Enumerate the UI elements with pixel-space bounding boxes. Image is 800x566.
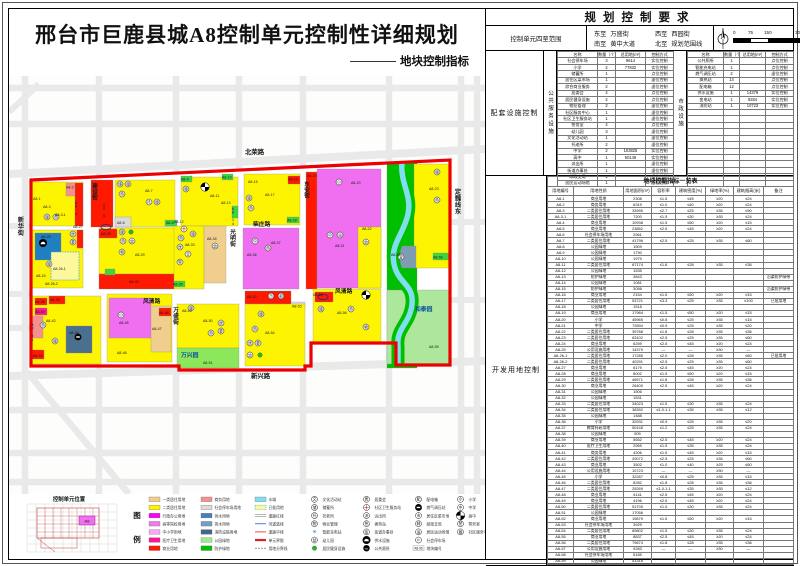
legend-column: 小小学中中学高中警警务室服社区服务中心 bbox=[456, 496, 485, 535]
road-label: 万盛街 bbox=[172, 307, 179, 326]
parcel-label: A8-38 bbox=[35, 300, 45, 304]
svg-text:已批用地: 已批用地 bbox=[269, 505, 284, 510]
svg-text:医疗卫生用地: 医疗卫生用地 bbox=[163, 538, 186, 543]
parcel-label: A8-24 bbox=[36, 274, 46, 278]
scale-bar-segments bbox=[733, 38, 800, 43]
parcel-label: A8-15 bbox=[248, 180, 258, 184]
parcel-label: A8-1 bbox=[33, 197, 41, 201]
legend-column: 文文化活动站储储蓄所托托老所物物业管理✳智能充电站幼幼儿园居民健身设施 bbox=[312, 496, 346, 551]
right-panel: 规划控制要求 控制单元四至范围 东至万盛街西至西园街南至黄中大道北至规划范围线 … bbox=[485, 9, 794, 559]
svg-text:A8-56: A8-56 bbox=[414, 547, 423, 551]
svg-text:储: 储 bbox=[118, 181, 122, 186]
svg-text:道路中线: 道路中线 bbox=[269, 530, 284, 535]
svg-text:市: 市 bbox=[269, 293, 273, 298]
svg-text:中: 中 bbox=[328, 232, 332, 237]
svg-text:建设街: 建设街 bbox=[91, 182, 98, 202]
svg-text:文: 文 bbox=[313, 497, 317, 502]
legend-column: 商务用地社会停车场用地供水用地排水用地消防设施用地公园绿地防护绿地 bbox=[201, 497, 241, 551]
svg-text:A8-16: A8-16 bbox=[288, 178, 298, 182]
sheet-frame: 邢台市巨鹿县城A8控制单元控制性详细规划 地块控制指标 服热储服热托服服服热小中… bbox=[8, 8, 794, 560]
svg-text:幼: 幼 bbox=[213, 243, 217, 248]
svg-text:A8-15: A8-15 bbox=[248, 180, 258, 184]
svg-text:道路红线: 道路红线 bbox=[269, 513, 284, 518]
svg-text:A8-12: A8-12 bbox=[174, 220, 184, 224]
svg-text:商务用地: 商务用地 bbox=[215, 497, 230, 502]
svg-text:服: 服 bbox=[47, 261, 51, 266]
svg-text:配: 配 bbox=[417, 497, 421, 502]
svg-text:服: 服 bbox=[435, 169, 439, 174]
svg-text:居民运动场馆: 居民运动场馆 bbox=[427, 530, 450, 535]
svg-text:A8-54: A8-54 bbox=[265, 331, 275, 335]
svg-text:万盛街: 万盛街 bbox=[172, 307, 179, 326]
svg-text:文化活动站: 文化活动站 bbox=[323, 497, 342, 502]
parcel-label: A8-53 bbox=[292, 305, 302, 309]
svg-text:控制单元位置: 控制单元位置 bbox=[53, 495, 86, 503]
scale-seg bbox=[734, 39, 751, 42]
svg-text:托老所: 托老所 bbox=[323, 513, 335, 518]
svg-text:A8-11: A8-11 bbox=[210, 194, 219, 198]
svg-text:物: 物 bbox=[120, 249, 124, 254]
svg-text:幼: 幼 bbox=[248, 352, 252, 357]
svg-text:A8-2: A8-2 bbox=[66, 186, 74, 190]
parcel-label: A8-19 bbox=[307, 174, 317, 178]
svg-text:A8-10: A8-10 bbox=[222, 176, 232, 180]
svg-text:智能充电站: 智能充电站 bbox=[323, 530, 342, 535]
svg-text:地块编号: 地块编号 bbox=[427, 546, 442, 551]
svg-text:小: 小 bbox=[337, 179, 341, 184]
road-label: 新华街 bbox=[17, 216, 25, 237]
svg-text:居: 居 bbox=[219, 320, 223, 325]
svg-text:A8-29: A8-29 bbox=[135, 253, 145, 257]
svg-text:A8-20: A8-20 bbox=[351, 181, 361, 185]
svg-text:热: 热 bbox=[249, 205, 253, 210]
road-label: 万兴园 bbox=[180, 351, 199, 359]
svg-text:幼: 幼 bbox=[313, 537, 317, 542]
svg-text:社区服务中心: 社区服务中心 bbox=[469, 530, 486, 535]
svg-text:热: 热 bbox=[266, 245, 270, 250]
parcel-label: A8-13 bbox=[221, 201, 231, 205]
svg-text:A8-1: A8-1 bbox=[33, 197, 41, 201]
planning-sheet: 邢台市巨鹿县城A8控制单元控制性详细规划 地块控制指标 服热储服热托服服服热小中… bbox=[0, 0, 800, 566]
table-header-row: 用地编号用地性质用地面积(m²)容积率建筑密度(%)绿地率(%)建筑限高(米)备… bbox=[547, 187, 793, 196]
svg-text:A8-38: A8-38 bbox=[35, 300, 45, 304]
bounds-direction: 东至万盛街 bbox=[589, 29, 650, 38]
svg-text:A8-18: A8-18 bbox=[287, 219, 297, 223]
parcel-label: A8-26-2 bbox=[45, 282, 58, 286]
parcel-label: A8-23 bbox=[429, 187, 439, 191]
parcel-label: A8-50 bbox=[203, 319, 213, 323]
parcel-label: A8-9 bbox=[181, 178, 189, 182]
scale-tick: 300m bbox=[795, 30, 800, 35]
svg-text:A8-17: A8-17 bbox=[265, 193, 275, 197]
legend-column: 配配电箱燃气调压站市居住区菜市场邮邮政支局运居民运动场馆P社会停车场A8-56地… bbox=[413, 496, 449, 551]
svg-text:居民健身设施: 居民健身设施 bbox=[323, 546, 346, 551]
svg-text:市: 市 bbox=[417, 513, 421, 518]
svg-text:图: 图 bbox=[133, 511, 141, 520]
parcel-label: A8-37 bbox=[271, 241, 281, 245]
bounds-label: 控制单元四至范围 bbox=[486, 26, 587, 50]
parcel-label: A8-46 bbox=[117, 351, 127, 355]
page-title: 邢台市巨鹿县城A8控制单元控制性详细规划 bbox=[9, 9, 485, 49]
svg-text:中: 中 bbox=[253, 238, 257, 243]
svg-text:幼: 幼 bbox=[364, 239, 368, 244]
bounds-direction: 北至规划范围线 bbox=[650, 39, 711, 48]
parcel-label: A8-8 bbox=[166, 221, 174, 225]
svg-text:水域: 水域 bbox=[269, 497, 277, 502]
parcel-label: A8-34 bbox=[207, 237, 217, 241]
parcel-label: A8-33 bbox=[185, 243, 195, 247]
svg-text:A8: A8 bbox=[85, 519, 91, 524]
svg-text:储: 储 bbox=[313, 505, 317, 510]
svg-text:A8-40: A8-40 bbox=[35, 310, 45, 314]
svg-text:邮: 邮 bbox=[279, 293, 283, 298]
parcel-label: A8-42 bbox=[46, 319, 56, 323]
svg-text:居: 居 bbox=[178, 244, 182, 249]
left-panel: 邢台市巨鹿县城A8控制单元控制性详细规划 地块控制指标 服热储服热托服服服热小中… bbox=[9, 9, 485, 559]
svg-text:A8-21: A8-21 bbox=[335, 244, 345, 248]
parcel-label: A8-54 bbox=[265, 331, 275, 335]
parcel-label: A8-43 bbox=[33, 354, 43, 358]
svg-text:A8-26-2: A8-26-2 bbox=[45, 282, 58, 286]
svg-text:行政办公用地: 行政办公用地 bbox=[163, 513, 186, 518]
svg-text:热: 热 bbox=[435, 197, 439, 202]
svg-text:警务室: 警务室 bbox=[469, 521, 481, 526]
parcel-label: A8-56 bbox=[337, 311, 347, 315]
parcel-label: A8-51 bbox=[203, 361, 213, 365]
svg-text:防护绿地: 防护绿地 bbox=[215, 546, 230, 551]
svg-text:A8-52: A8-52 bbox=[247, 295, 257, 299]
road-label: 新兴路 bbox=[251, 371, 271, 380]
road-label: 风清路 bbox=[143, 297, 161, 305]
svg-text:A8-3-1: A8-3-1 bbox=[55, 213, 66, 217]
svg-text:A8-42: A8-42 bbox=[46, 319, 56, 323]
zoning-map-svg: 服热储服热托服服服热小中运幼服热居委服服热幼物十服热居交警幼中热变热服小服居委热… bbox=[9, 76, 485, 494]
svg-text:A8-50: A8-50 bbox=[203, 319, 213, 323]
svg-text:A8-45: A8-45 bbox=[119, 321, 129, 325]
svg-text:A8-8: A8-8 bbox=[166, 221, 174, 225]
svg-text:A8-53: A8-53 bbox=[292, 305, 302, 309]
legend-column: 水域已批用地道路红线河道蓝线道路中线单元界限用地分界线 bbox=[255, 497, 288, 551]
parcel-label: A8-16 bbox=[288, 178, 298, 182]
svg-text:A8-44: A8-44 bbox=[69, 331, 79, 335]
svg-text:热: 热 bbox=[253, 326, 257, 331]
parcel-label: A8-58 bbox=[433, 256, 443, 260]
scale-tick: 0 bbox=[733, 30, 736, 35]
road-label: 定魏线东 bbox=[454, 188, 462, 215]
svg-text:万兴园: 万兴园 bbox=[180, 351, 199, 359]
svg-text:换热站: 换热站 bbox=[375, 521, 387, 526]
svg-text:二类居住用地: 二类居住用地 bbox=[163, 505, 186, 510]
svg-text:定魏线东: 定魏线东 bbox=[454, 188, 462, 215]
svg-text:例: 例 bbox=[133, 534, 141, 544]
svg-text:A8-27: A8-27 bbox=[73, 225, 83, 229]
svg-text:A8-3: A8-3 bbox=[43, 205, 51, 209]
parcel-label: A8-48 bbox=[159, 311, 169, 315]
road-label: 东安街 bbox=[303, 180, 310, 200]
svg-text:中小学用地: 中小学用地 bbox=[163, 530, 182, 535]
svg-text:柴庄路: 柴庄路 bbox=[252, 220, 271, 228]
svg-text:东安街: 东安街 bbox=[303, 180, 310, 200]
svg-text:A8-46: A8-46 bbox=[117, 351, 127, 355]
svg-text:A8-35: A8-35 bbox=[173, 283, 183, 287]
parcel-label: A8-17 bbox=[265, 193, 275, 197]
parcel-label: A8-20 bbox=[351, 181, 361, 185]
svg-text:A8-36: A8-36 bbox=[247, 253, 257, 257]
parcel-label: A8-49 bbox=[182, 309, 192, 313]
svg-text:河道蓝线: 河道蓝线 bbox=[269, 521, 284, 526]
parcel-label: A8-45 bbox=[119, 321, 129, 325]
svg-text:物业管理: 物业管理 bbox=[323, 521, 338, 526]
road-label: 柴庄路 bbox=[252, 220, 271, 228]
svg-text:服: 服 bbox=[184, 186, 188, 191]
road-label: 和泰园 bbox=[414, 305, 433, 313]
svg-text:供水设施: 供水设施 bbox=[375, 538, 390, 543]
legend-column: 居居委会十社区卫生服务站派派出所热换热站街街道办事处供水设施wc公共厕所 bbox=[363, 496, 402, 551]
plots-label: 开发用地控制 bbox=[486, 176, 547, 565]
svg-text:A8-55: A8-55 bbox=[313, 293, 323, 297]
parcel-label: A8-52 bbox=[247, 295, 257, 299]
svg-text:幼儿园: 幼儿园 bbox=[323, 538, 335, 543]
legend-svg: 控制单元位置A8图例一类居住用地二类居住用地行政办公用地高等院校用地中小学用地医… bbox=[9, 494, 485, 555]
svg-text:A8-34: A8-34 bbox=[207, 237, 217, 241]
municipal-facilities-label: 市政设施 bbox=[674, 51, 687, 175]
svg-text:A8-6: A8-6 bbox=[117, 221, 125, 225]
svg-text:用地分界线: 用地分界线 bbox=[269, 546, 288, 551]
svg-text:街: 街 bbox=[365, 529, 369, 534]
legend-strip: 控制单元位置A8图例一类居住用地二类居住用地行政办公用地高等院校用地中小学用地医… bbox=[9, 494, 485, 555]
parcel-label: A8-2 bbox=[66, 186, 74, 190]
svg-text:居住区菜市场: 居住区菜市场 bbox=[427, 513, 450, 518]
parcel-label: A8-47 bbox=[152, 327, 162, 331]
plots-section: 开发用地控制 地块控制指标一览表用地编号用地性质用地面积(m²)容积率建筑密度(… bbox=[486, 176, 794, 566]
parcel-label: A8-40 bbox=[35, 310, 45, 314]
svg-text:A8-56: A8-56 bbox=[337, 311, 347, 315]
svg-text:社会停车场用地: 社会停车场用地 bbox=[215, 505, 242, 510]
title-block: 邢台市巨鹿县城A8控制单元控制性详细规划 地块控制指标 bbox=[9, 9, 485, 76]
scale-seg bbox=[768, 39, 800, 42]
scale-tick: 150 bbox=[764, 30, 772, 35]
public-facilities-table: 名称数量（个）总用地(m²)控制方式社会停车场39614实位控制小学277832… bbox=[557, 51, 674, 175]
svg-text:A8-26-1: A8-26-1 bbox=[53, 267, 66, 271]
svg-text:服: 服 bbox=[45, 214, 49, 219]
svg-text:配电箱: 配电箱 bbox=[427, 497, 439, 502]
legend-column: 一类居住用地二类居住用地行政办公用地高等院校用地中小学用地医疗卫生用地商业用地 bbox=[149, 497, 185, 551]
road-label: 建设街 bbox=[91, 182, 98, 202]
page-subtitle: 地块控制指标 bbox=[350, 53, 469, 69]
parcel-label: A8-6 bbox=[117, 221, 125, 225]
scale-bar: 075150300m bbox=[733, 30, 791, 46]
svg-text:居: 居 bbox=[71, 231, 75, 236]
svg-text:中: 中 bbox=[459, 505, 463, 510]
svg-text:A8-25: A8-25 bbox=[41, 235, 51, 239]
svg-text:委: 委 bbox=[256, 340, 260, 345]
svg-text:新华街: 新华街 bbox=[17, 216, 25, 237]
svg-text:小: 小 bbox=[119, 312, 123, 317]
svg-text:A8-49: A8-49 bbox=[182, 309, 192, 313]
svg-text:风清路: 风清路 bbox=[143, 297, 161, 305]
bounds-directions: 东至万盛街西至西园街南至黄中大道北至规划范围线 bbox=[587, 26, 714, 50]
svg-text:北荣路: 北荣路 bbox=[245, 147, 265, 156]
svg-text:热: 热 bbox=[349, 306, 353, 311]
parcel-label: A8-3 bbox=[43, 205, 51, 209]
svg-text:A8-57: A8-57 bbox=[391, 253, 401, 257]
parcel-label: A8-39 bbox=[50, 298, 60, 302]
svg-text:热: 热 bbox=[121, 238, 125, 243]
svg-text:✳: ✳ bbox=[312, 530, 317, 536]
subtitle-text: 地块控制指标 bbox=[400, 53, 469, 69]
svg-text:派: 派 bbox=[365, 513, 369, 518]
svg-text:商业用地: 商业用地 bbox=[163, 546, 178, 551]
svg-text:服: 服 bbox=[155, 199, 159, 204]
parcel-label: A8-7 bbox=[145, 189, 153, 193]
svg-text:派出所: 派出所 bbox=[375, 513, 387, 518]
plot-row: A8-59公园绿地41316 bbox=[547, 558, 793, 564]
svg-text:A8-59: A8-59 bbox=[429, 345, 439, 349]
svg-text:风清路: 风清路 bbox=[335, 287, 353, 295]
svg-text:委: 委 bbox=[219, 328, 223, 333]
svg-text:光明街: 光明街 bbox=[229, 228, 236, 248]
scale-seg bbox=[751, 39, 768, 42]
parcel-label: A8-55 bbox=[313, 293, 323, 297]
svg-text:服: 服 bbox=[259, 311, 263, 316]
svg-text:热: 热 bbox=[41, 322, 45, 327]
parcel-label: A8-28 bbox=[101, 232, 111, 236]
svg-text:A8-9: A8-9 bbox=[181, 178, 189, 182]
parcel-label: A8-26-1 bbox=[53, 267, 66, 271]
svg-text:服: 服 bbox=[120, 229, 124, 234]
svg-text:委: 委 bbox=[71, 239, 75, 244]
parcel-label: A8-27 bbox=[73, 225, 83, 229]
bounds-row: 控制单元四至范围 东至万盛街西至西园街南至黄中大道北至规划范围线 0751503… bbox=[486, 26, 794, 51]
svg-text:居委会: 居委会 bbox=[375, 497, 387, 502]
svg-text:储蓄所: 储蓄所 bbox=[323, 505, 335, 510]
road-label: 风清路 bbox=[335, 287, 353, 295]
svg-text:A8-37: A8-37 bbox=[271, 241, 281, 245]
svg-text:供水用地: 供水用地 bbox=[215, 513, 230, 518]
svg-text:A8-47: A8-47 bbox=[152, 327, 162, 331]
svg-text:托: 托 bbox=[147, 199, 151, 204]
svg-text:P: P bbox=[417, 538, 420, 542]
parcel-label: A8-36 bbox=[247, 253, 257, 257]
parcel-label: A8-11 bbox=[210, 194, 219, 198]
svg-text:A8-13: A8-13 bbox=[221, 201, 231, 205]
svg-text:A8-24: A8-24 bbox=[36, 274, 46, 278]
parcel-label: A8-21 bbox=[335, 244, 345, 248]
scale-area: 075150300m bbox=[714, 26, 794, 50]
svg-text:居: 居 bbox=[365, 497, 369, 502]
svg-text:A8-43: A8-43 bbox=[33, 354, 43, 358]
svg-text:热: 热 bbox=[209, 330, 213, 335]
svg-text:幼: 幼 bbox=[130, 238, 134, 243]
parcel-label: A8-35 bbox=[173, 283, 183, 287]
svg-text:邮: 邮 bbox=[417, 521, 421, 526]
zoning-map: 服热储服热托服服服热小中运幼服热居委服服热幼物十服热居交警幼中热变热服小服居委热… bbox=[9, 76, 485, 494]
parcel-label: A8-57 bbox=[391, 253, 401, 257]
svg-text:邮政支局: 邮政支局 bbox=[427, 521, 442, 526]
svg-text:服: 服 bbox=[319, 306, 323, 311]
plots-table-title: 地块控制指标一览表 bbox=[547, 177, 793, 187]
svg-text:公共厕所: 公共厕所 bbox=[375, 546, 390, 551]
subtitle-dash bbox=[350, 61, 396, 62]
svg-text:A8-28: A8-28 bbox=[101, 232, 111, 236]
svg-text:消防设施用地: 消防设施用地 bbox=[215, 530, 238, 535]
svg-text:社区卫生服务站: 社区卫生服务站 bbox=[375, 505, 402, 510]
plots-table: 地块控制指标一览表用地编号用地性质用地面积(m²)容积率建筑密度(%)绿地率(%… bbox=[547, 176, 794, 565]
svg-text:A8-39: A8-39 bbox=[50, 298, 60, 302]
svg-text:和泰园: 和泰园 bbox=[414, 305, 433, 313]
svg-text:警: 警 bbox=[459, 521, 463, 526]
svg-text:服: 服 bbox=[53, 338, 57, 343]
svg-text:单元界限: 单元界限 bbox=[269, 538, 284, 543]
public-facilities-label: 公共服务设施 bbox=[544, 51, 557, 175]
svg-text:A8-30: A8-30 bbox=[129, 280, 139, 284]
svg-text:新兴路: 新兴路 bbox=[251, 371, 271, 380]
north-arrow-icon bbox=[717, 26, 729, 50]
parcel-label: A8-22 bbox=[362, 227, 372, 231]
bounds-direction: 西至西园街 bbox=[650, 29, 711, 38]
svg-text:托: 托 bbox=[313, 513, 317, 518]
scale-tick: 75 bbox=[748, 30, 753, 35]
facilities-section: 配套设施控制 公共服务设施 名称数量（个）总用地(m²)控制方式社会停车场396… bbox=[486, 51, 794, 176]
svg-text:运: 运 bbox=[338, 232, 342, 237]
svg-text:排水用地: 排水用地 bbox=[215, 521, 230, 526]
svg-text:社会停车场: 社会停车场 bbox=[427, 538, 446, 543]
svg-text:街道办事处: 街道办事处 bbox=[375, 530, 394, 535]
parcel-label: A8-12 bbox=[174, 220, 184, 224]
svg-text:热: 热 bbox=[179, 235, 183, 240]
svg-text:高等院校用地: 高等院校用地 bbox=[163, 521, 186, 526]
road-label: 北荣路 bbox=[245, 147, 265, 156]
svg-text:交: 交 bbox=[186, 251, 190, 256]
svg-text:A8-33: A8-33 bbox=[185, 243, 195, 247]
scale-ticks: 075150300m bbox=[733, 30, 785, 37]
svg-text:A8-23: A8-23 bbox=[429, 187, 439, 191]
svg-text:公园绿地: 公园绿地 bbox=[215, 538, 230, 543]
parcel-label: A8-30 bbox=[129, 280, 139, 284]
svg-text:运: 运 bbox=[417, 529, 421, 534]
svg-text:一类居住用地: 一类居住用地 bbox=[163, 497, 186, 502]
svg-text:小: 小 bbox=[459, 497, 463, 502]
svg-text:燃气调压站: 燃气调压站 bbox=[427, 505, 446, 510]
svg-text:物: 物 bbox=[313, 521, 317, 526]
locator-map: 控制单元位置A8 bbox=[27, 495, 117, 552]
svg-text:中学: 中学 bbox=[469, 505, 477, 510]
svg-text:热: 热 bbox=[120, 191, 124, 196]
parcel-label: A8-29 bbox=[135, 253, 145, 257]
parcel-label: A8-10 bbox=[222, 176, 232, 180]
parcel-label: A8-25 bbox=[41, 235, 51, 239]
requirements-title: 规划控制要求 bbox=[486, 9, 794, 26]
road-label: 光明街 bbox=[229, 228, 236, 248]
svg-text:热: 热 bbox=[365, 521, 369, 526]
svg-text:A8-58: A8-58 bbox=[433, 256, 443, 260]
bounds-direction: 南至黄中大道 bbox=[589, 39, 650, 48]
municipal-facilities-table: 名称数量（个）总用地(m²)控制方式公共厕所1点位控制智能充电站1点位控制燃气调… bbox=[687, 51, 794, 175]
svg-text:小学: 小学 bbox=[469, 497, 477, 502]
svg-text:A8-48: A8-48 bbox=[159, 311, 169, 315]
svg-text:A8-7: A8-7 bbox=[145, 189, 153, 193]
parcel-label: A8-44 bbox=[69, 331, 79, 335]
svg-text:A8-51: A8-51 bbox=[203, 361, 213, 365]
parcel-label: A8-3-1 bbox=[55, 213, 66, 217]
svg-text:居: 居 bbox=[248, 340, 252, 345]
parcel-label: A8-18 bbox=[287, 219, 297, 223]
svg-text:A8-22: A8-22 bbox=[362, 227, 372, 231]
svg-text:高中: 高中 bbox=[469, 513, 477, 518]
svg-text:物: 物 bbox=[364, 324, 368, 329]
svg-text:警: 警 bbox=[178, 259, 182, 264]
svg-text:服: 服 bbox=[247, 195, 251, 200]
